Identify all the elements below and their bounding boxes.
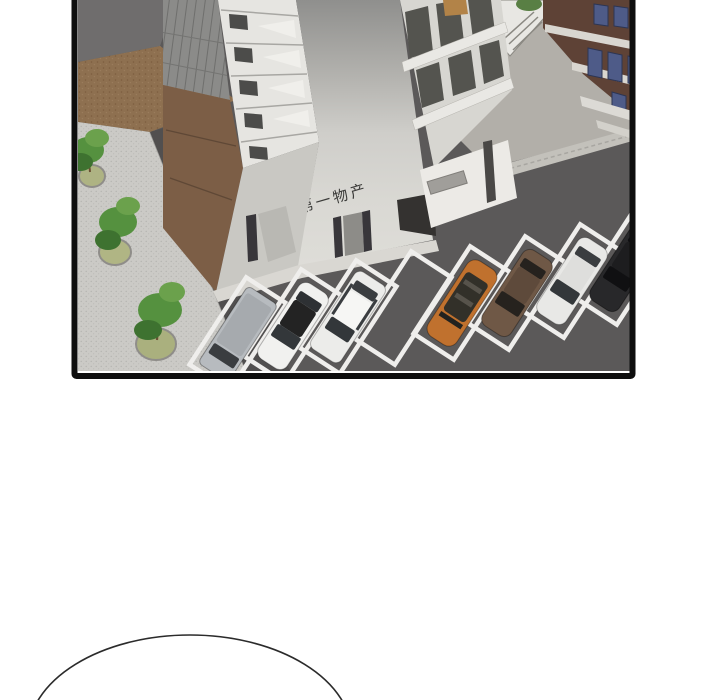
- balcony-window: [239, 80, 258, 96]
- comic-panel-scene: 第一物产: [0, 0, 720, 700]
- balcony-window: [234, 47, 253, 63]
- window: [588, 48, 602, 78]
- tree-foliage: [116, 197, 140, 215]
- tree-foliage: [134, 320, 162, 340]
- comic-page: 第一物产: [0, 0, 720, 700]
- balcony-window: [229, 14, 248, 30]
- glass-panel: [448, 50, 476, 96]
- tree-foliage: [67, 153, 93, 171]
- window: [608, 52, 622, 82]
- panel-interior: 第一物产: [67, 0, 673, 391]
- balcony-window: [249, 146, 268, 160]
- balcony-window: [244, 113, 263, 129]
- window: [594, 4, 608, 26]
- tree-foliage: [159, 282, 185, 302]
- glass-panel: [405, 6, 433, 58]
- tree-foliage: [95, 230, 121, 250]
- entrance-recess: [343, 212, 364, 256]
- window: [614, 6, 628, 28]
- speech-bubble: [28, 635, 352, 700]
- tree-foliage: [85, 129, 109, 147]
- entrance-pillar-dark: [246, 214, 258, 262]
- tan-wall-patch: [443, 0, 468, 16]
